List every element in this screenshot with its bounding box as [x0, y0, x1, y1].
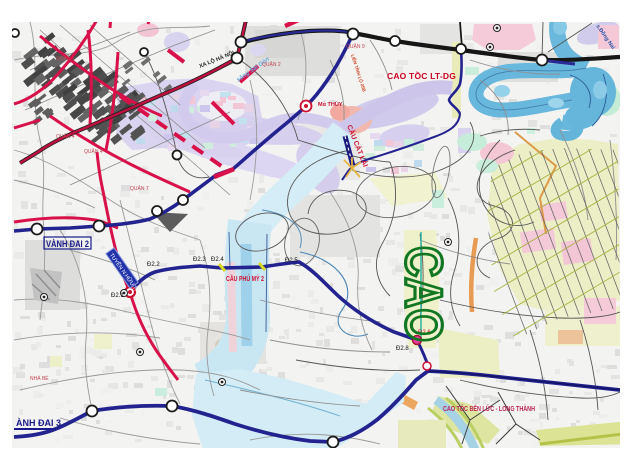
svg-text:CAO: CAO	[394, 246, 452, 342]
svg-text:Đ2.3: Đ2.3	[193, 257, 206, 263]
svg-text:Đ2.4: Đ2.4	[211, 257, 224, 263]
svg-text:Đ2.8: Đ2.8	[396, 346, 409, 352]
svg-text:QUẬN 4: QUẬN 4	[84, 148, 103, 155]
svg-text:QUẬN 9: QUẬN 9	[346, 43, 365, 50]
svg-text:Mἀ THỦY: Mἀ THỦY	[318, 101, 343, 108]
svg-text:Đ2.5: Đ2.5	[285, 258, 298, 264]
svg-text:QUẬN 1: QUẬN 1	[56, 55, 75, 62]
svg-text:CAO TỐC BẾN LỨC - LONG THÀNH: CAO TỐC BẾN LỨC - LONG THÀNH	[443, 403, 535, 413]
svg-text:QUẬN 4: QUẬN 4	[56, 133, 75, 140]
svg-text:CAO TỒC LT-DG: CAO TỒC LT-DG	[387, 70, 456, 81]
svg-text:QUẬN 2: QUẬN 2	[262, 61, 281, 68]
svg-text:ÀNH ĐAI 3: ÀNH ĐAI 3	[16, 418, 61, 428]
svg-text:Đ2.2: Đ2.2	[147, 262, 160, 268]
svg-text:VÀNH ĐAI 2: VÀNH ĐAI 2	[46, 239, 89, 249]
svg-text:Đ2.1: Đ2.1	[111, 293, 124, 299]
svg-text:QUẬN 7: QUẬN 7	[130, 185, 149, 192]
svg-text:NHÀ BÈ: NHÀ BÈ	[30, 375, 49, 382]
